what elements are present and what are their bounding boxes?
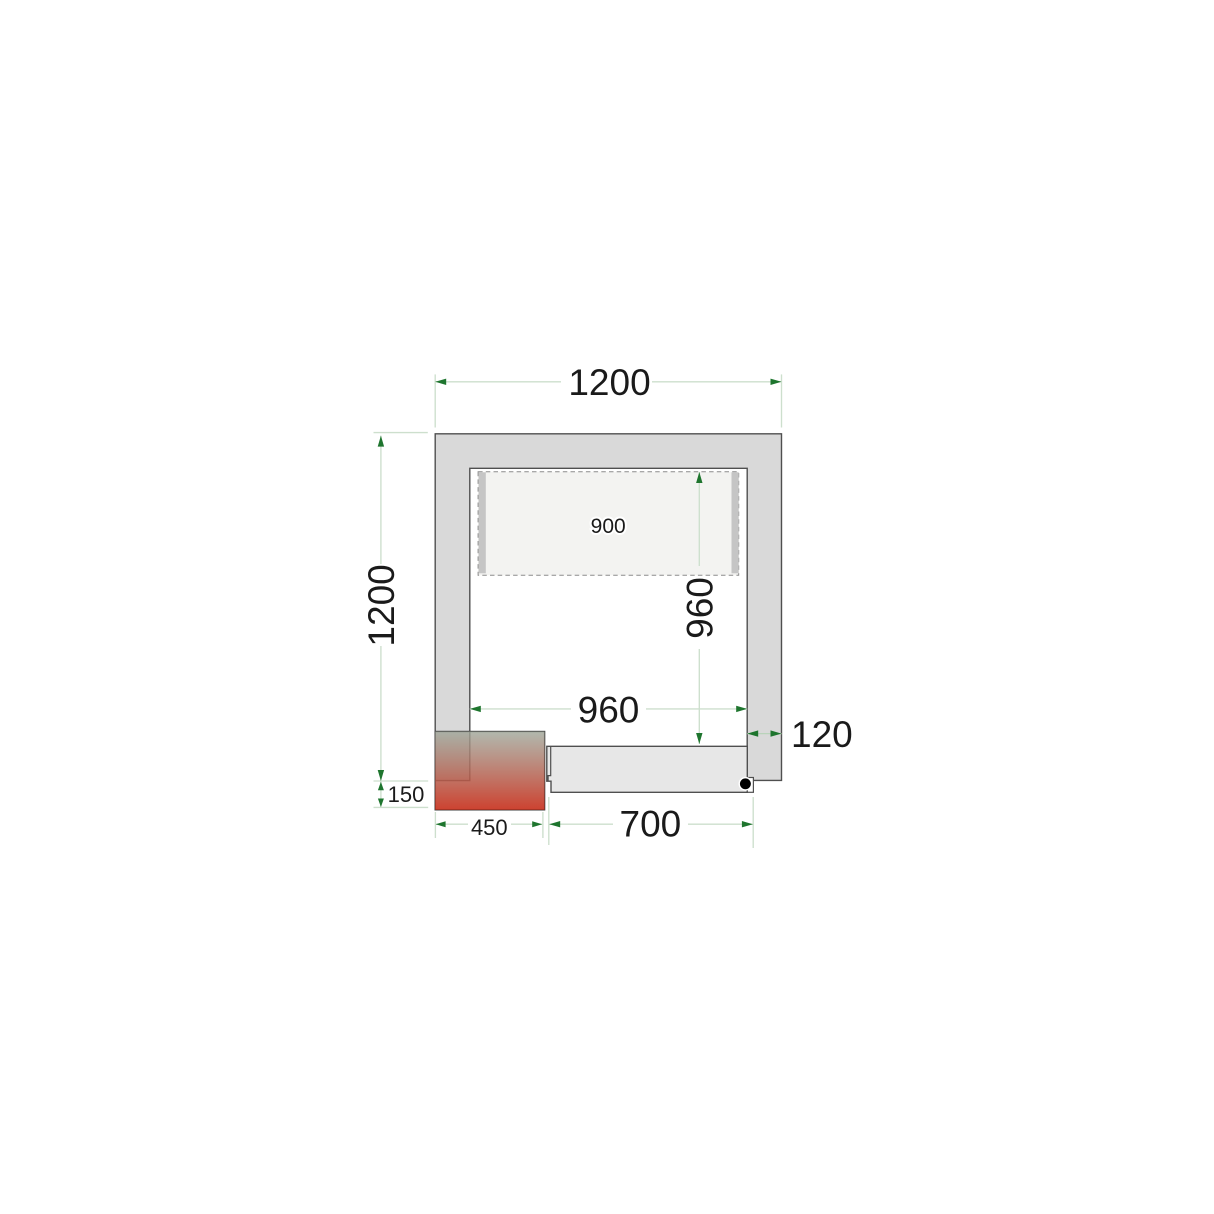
svg-text:1200: 1200 bbox=[361, 564, 402, 646]
svg-text:900: 900 bbox=[591, 515, 626, 538]
svg-text:960: 960 bbox=[578, 689, 640, 730]
svg-text:120: 120 bbox=[791, 714, 853, 755]
svg-text:450: 450 bbox=[471, 815, 508, 840]
svg-text:700: 700 bbox=[620, 804, 682, 845]
svg-text:150: 150 bbox=[388, 782, 425, 807]
svg-text:1200: 1200 bbox=[568, 362, 650, 403]
svg-text:960: 960 bbox=[679, 577, 720, 639]
